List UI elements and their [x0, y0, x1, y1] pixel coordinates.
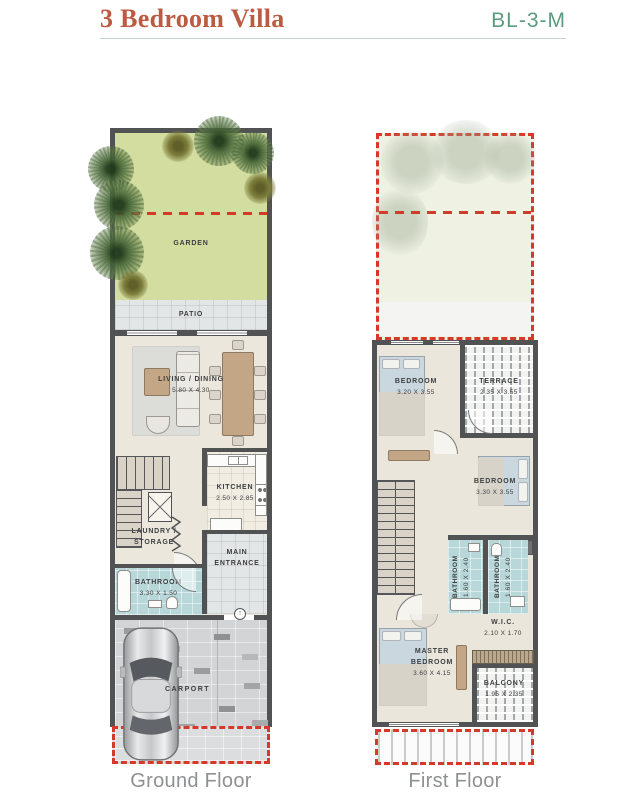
room-label-wic: W.I.C. 2.10 X 1.70 [472, 617, 534, 639]
wall [460, 433, 534, 438]
room-label-main-entrance: MAIN ENTRANCE [207, 547, 267, 569]
page-title: 3 Bedroom Villa [100, 4, 285, 34]
window [388, 722, 460, 727]
room-dims-bathroom-2: 1.60 X 2.40 [505, 542, 512, 612]
pillow [382, 359, 400, 369]
wardrobe [472, 650, 534, 664]
entry-arrow-icon: ↑ [234, 608, 246, 620]
pergola-boundary-dash [375, 729, 534, 765]
first-floor-label: First Floor [372, 770, 538, 793]
paving-joint [217, 620, 218, 727]
ghost-tree [372, 186, 428, 258]
pillow [404, 631, 422, 641]
room-label-patio: PATIO [110, 309, 272, 320]
kitchen-sink [228, 456, 248, 465]
floorplan-page: 3 Bedroom Villa BL-3-M GARDEN PATIO [0, 0, 643, 800]
room-label-balcony: BALCONY 1.95 X 2.35 [473, 678, 535, 700]
ghost-patio [379, 302, 531, 336]
shrub-icon [118, 270, 148, 300]
dining-chair [232, 436, 244, 446]
sink [510, 596, 525, 607]
room-dims-bathroom-1: 1.60 X 2.40 [463, 542, 470, 612]
room-label-bedroom-1: BEDROOM 3.20 X 3.55 [373, 376, 459, 398]
pillow [403, 359, 420, 369]
dining-chair [209, 414, 221, 424]
room-label-living-dining: LIVING / DINING 5.80 X 4.30 [110, 374, 272, 396]
tree-icon [232, 132, 274, 174]
ghost-tree [484, 132, 536, 184]
dresser [388, 450, 430, 461]
garden-boundary-dash [379, 211, 531, 214]
shrub-icon [162, 130, 194, 162]
tree-icon [94, 180, 144, 230]
room-label-bathroom-1: BATHROOM [452, 542, 459, 612]
room-label-carport: CARPORT [140, 684, 235, 695]
room-label-kitchen: KITCHEN 2.50 X 2.85 [203, 482, 267, 504]
storage-shaft [148, 492, 172, 522]
room-label-terrace: TERRACE 2.35 X 3.55 [465, 376, 533, 398]
window [390, 340, 424, 345]
sink [148, 600, 162, 608]
blanket [379, 392, 425, 436]
room-label-bathroom-2: BATHROOM [494, 542, 501, 612]
pillow [382, 631, 401, 641]
bifold-door-icon [170, 516, 182, 552]
header-divider [100, 38, 566, 39]
room-label-bedroom-2: BEDROOM 3.30 X 3.55 [458, 476, 532, 498]
entrance-area [207, 534, 267, 614]
ground-floor-label: Ground Floor [110, 770, 272, 793]
room-label-laundry-storage: LAUNDRY / STORAGE [112, 526, 196, 548]
window [126, 330, 178, 336]
dining-chair [254, 414, 266, 424]
unit-code: BL-3-M [491, 9, 566, 33]
staircase [377, 480, 415, 595]
wall [267, 620, 272, 727]
room-label-master-bedroom: MASTER BEDROOM 3.60 X 4.15 [397, 646, 467, 679]
first-floor-plan: BEDROOM 3.20 X 3.55 TERRACE 2.35 X 3.55 … [372, 128, 538, 768]
window [432, 340, 460, 345]
window [196, 330, 248, 336]
dining-chair [232, 340, 244, 350]
ground-floor-plan: GARDEN PATIO LIVING / DINING 5.8 [110, 128, 272, 768]
stair-rail [395, 480, 396, 595]
shrub-icon [244, 172, 276, 204]
staircase [116, 456, 170, 490]
